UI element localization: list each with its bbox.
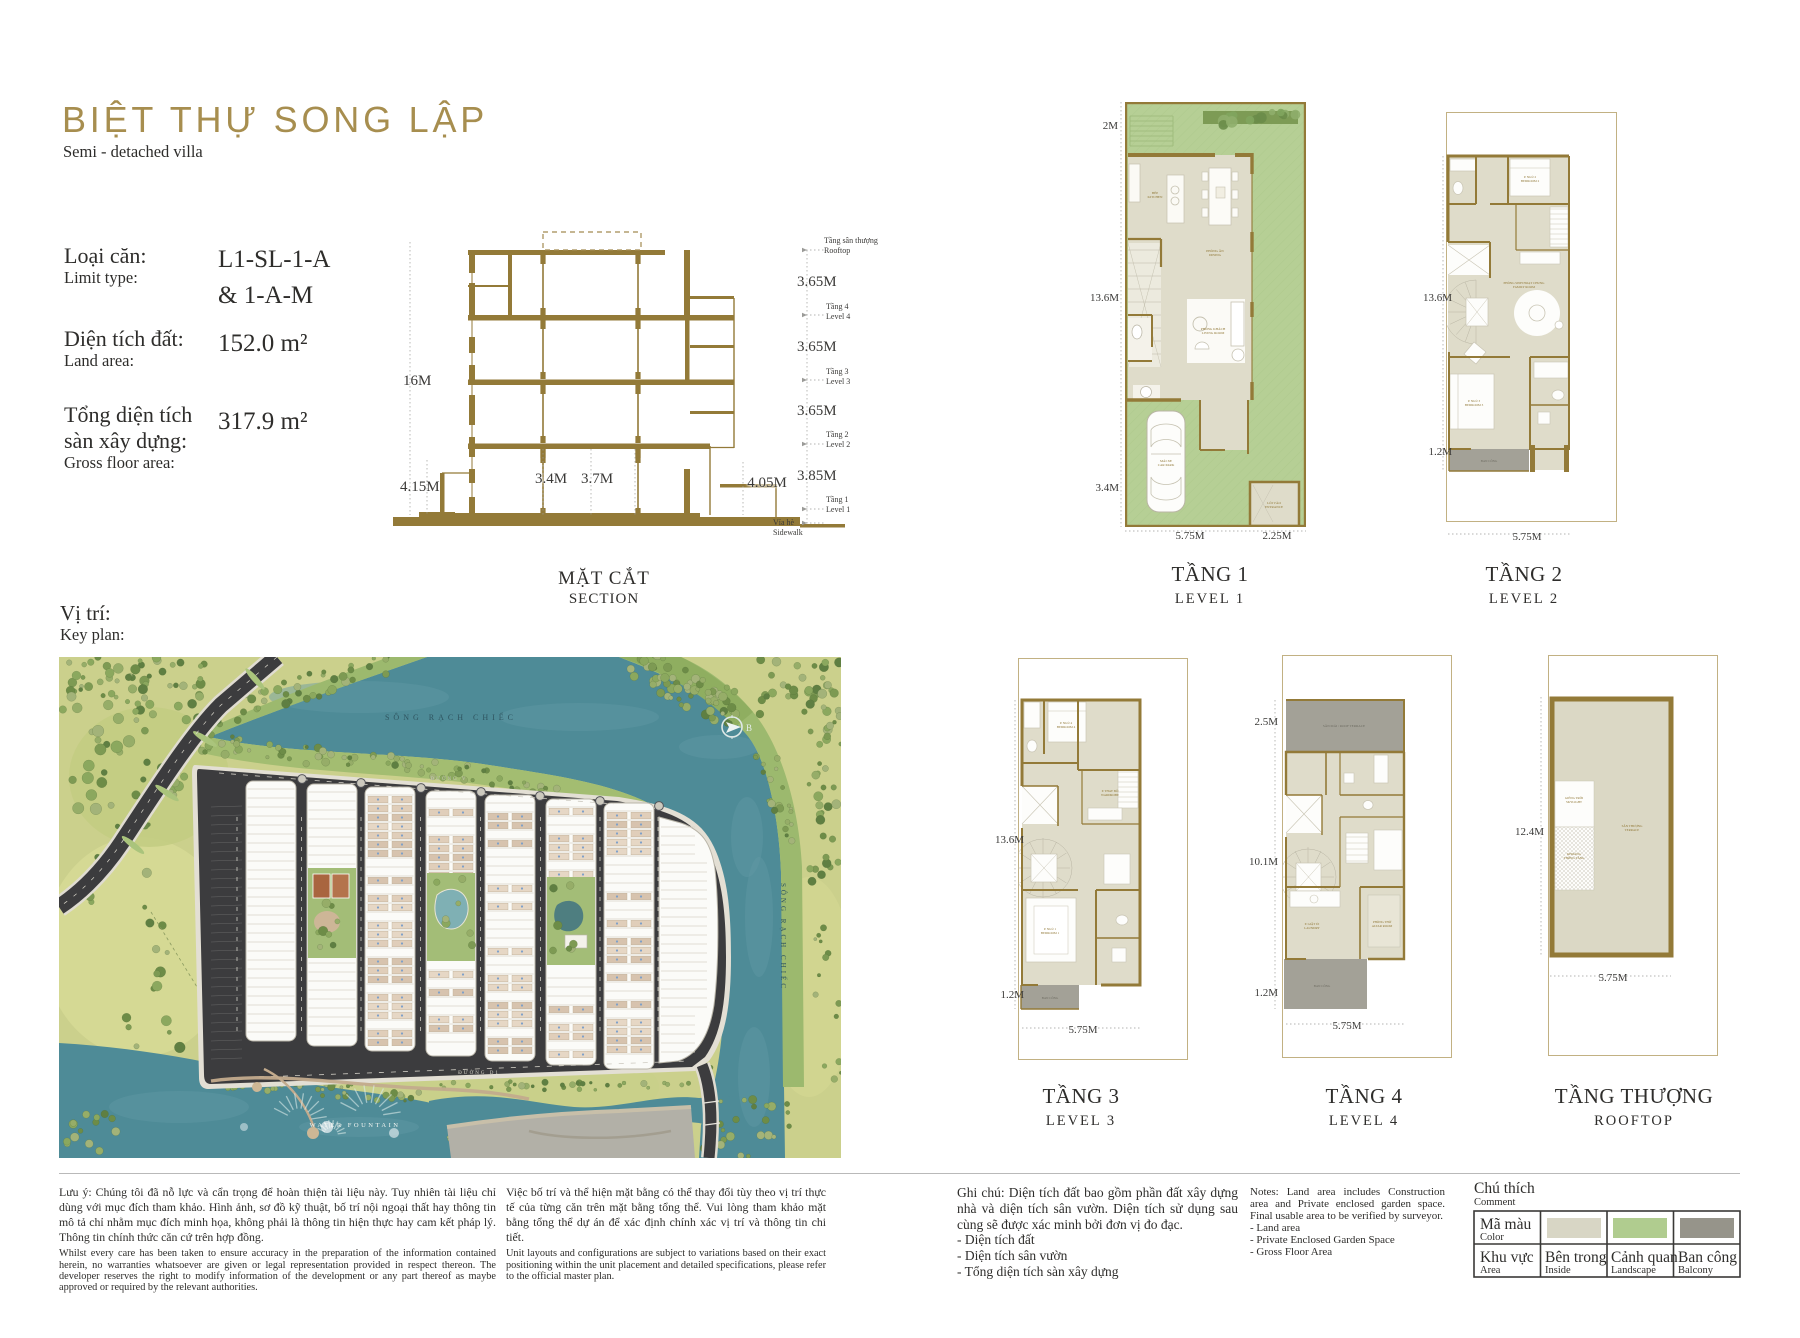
svg-text:Landscape: Landscape	[1611, 1265, 1656, 1276]
svg-text:Balcony: Balcony	[1678, 1265, 1714, 1276]
svg-text:Ban công: Ban công	[1678, 1249, 1737, 1266]
svg-text:Color: Color	[1480, 1232, 1504, 1243]
svg-text:Khu vực: Khu vực	[1480, 1249, 1534, 1266]
svg-text:Area: Area	[1480, 1265, 1501, 1276]
svg-text:Inside: Inside	[1545, 1265, 1571, 1276]
svg-text:Mã màu: Mã màu	[1480, 1216, 1531, 1233]
svg-text:Cảnh quan: Cảnh quan	[1611, 1249, 1678, 1266]
svg-text:Bên trong: Bên trong	[1545, 1249, 1607, 1266]
